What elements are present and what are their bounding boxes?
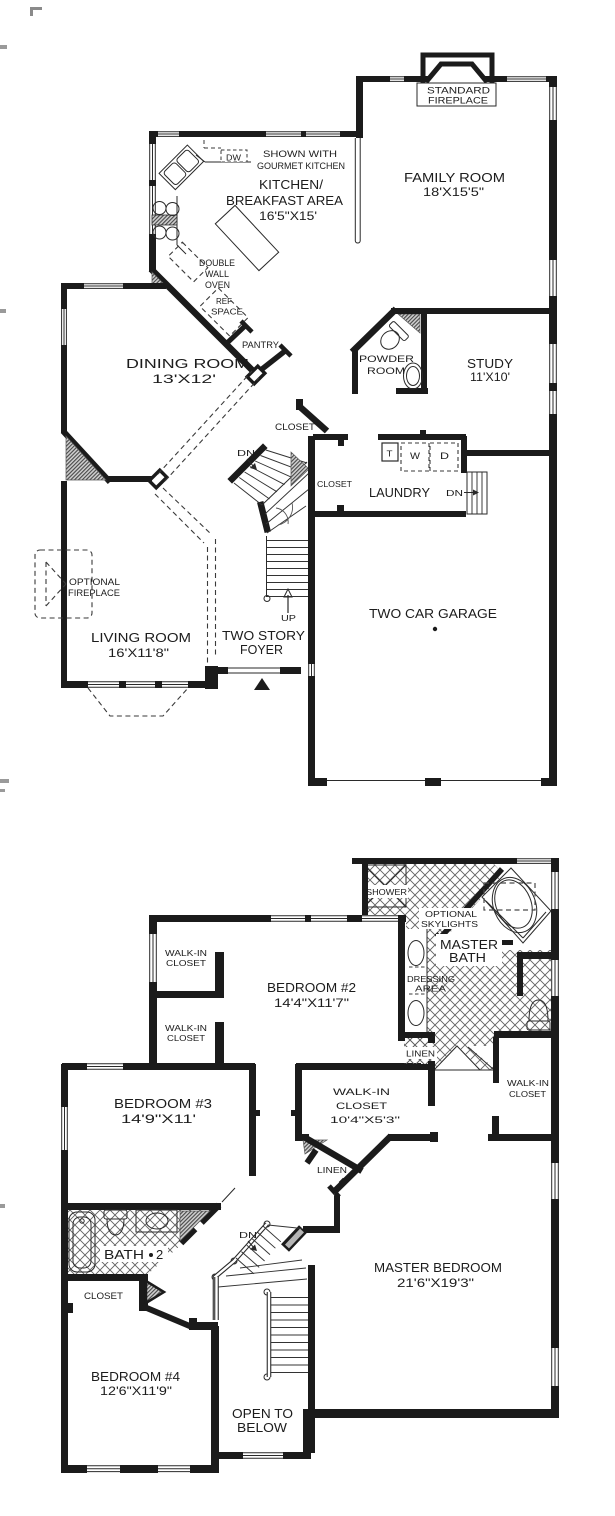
svg-text:BEDROOM #2: BEDROOM #2 [267, 980, 356, 995]
svg-text:WALK-IN: WALK-IN [507, 1078, 549, 1088]
svg-text:TWO CAR GARAGE: TWO CAR GARAGE [369, 606, 497, 621]
svg-text:DRESSING: DRESSING [407, 974, 455, 984]
svg-text:18'X15'5": 18'X15'5" [423, 185, 484, 199]
svg-text:POWDER: POWDER [359, 354, 414, 365]
svg-text:DW: DW [226, 153, 241, 163]
svg-text:PANTRY: PANTRY [242, 340, 280, 351]
svg-text:BREAKFAST AREA: BREAKFAST AREA [226, 193, 343, 208]
svg-text:TWO STORY: TWO STORY [222, 628, 305, 643]
svg-text:MASTER BEDROOM: MASTER BEDROOM [374, 1260, 502, 1275]
svg-text:16'5"X15': 16'5"X15' [259, 209, 317, 223]
svg-text:16'X11'8": 16'X11'8" [108, 646, 169, 660]
svg-text:13'X12': 13'X12' [152, 372, 216, 386]
svg-text:FOYER: FOYER [240, 642, 283, 657]
svg-text:ROOM: ROOM [367, 366, 405, 377]
svg-text:WALK-IN: WALK-IN [333, 1087, 390, 1098]
svg-text:WALL: WALL [205, 269, 229, 280]
svg-text:CLOSET: CLOSET [317, 479, 352, 489]
svg-text:12'6"X11'9": 12'6"X11'9" [100, 1384, 172, 1398]
svg-text:DN: DN [446, 488, 463, 498]
svg-text:CLOSET: CLOSET [509, 1089, 546, 1099]
svg-text:SHOWER: SHOWER [366, 887, 407, 897]
svg-text:DN: DN [239, 1230, 257, 1240]
svg-text:21'6"X19'3": 21'6"X19'3" [397, 1276, 474, 1290]
svg-text:LAUNDRY: LAUNDRY [369, 485, 430, 500]
svg-text:DOUBLE: DOUBLE [199, 258, 235, 269]
svg-text:AREA: AREA [415, 984, 446, 994]
svg-text:LIVING ROOM: LIVING ROOM [91, 630, 191, 645]
svg-text:BATH: BATH [104, 1247, 144, 1262]
svg-text:T: T [387, 449, 393, 459]
svg-text:FIREPLACE: FIREPLACE [68, 588, 120, 599]
svg-text:KITCHEN/: KITCHEN/ [259, 177, 323, 192]
svg-text:CLOSET: CLOSET [84, 1291, 123, 1302]
svg-text:SHOWN WITH: SHOWN WITH [263, 149, 337, 160]
svg-text:W: W [410, 451, 420, 462]
svg-text:WALK-IN: WALK-IN [165, 1023, 207, 1033]
svg-text:BEDROOM #3: BEDROOM #3 [114, 1096, 212, 1111]
svg-text:DN: DN [237, 448, 255, 458]
svg-text:11'X10': 11'X10' [470, 370, 510, 384]
svg-text:GOURMET KITCHEN: GOURMET KITCHEN [257, 161, 345, 172]
svg-text:CLOSET: CLOSET [275, 422, 315, 433]
svg-text:SKYLIGHTS: SKYLIGHTS [421, 919, 478, 929]
svg-text:BEDROOM #4: BEDROOM #4 [91, 1369, 180, 1384]
svg-text:UP: UP [281, 613, 296, 623]
svg-text:SPACE: SPACE [211, 307, 243, 317]
svg-text:10'4"X5'3": 10'4"X5'3" [330, 1115, 400, 1126]
svg-text:LINEN: LINEN [317, 1165, 347, 1175]
svg-text:DINING ROOM: DINING ROOM [126, 356, 249, 371]
svg-text:CLOSET: CLOSET [336, 1101, 387, 1112]
svg-text:14'4"X11'7": 14'4"X11'7" [274, 996, 349, 1010]
svg-text:CLOSET: CLOSET [166, 958, 206, 968]
svg-text:WALK-IN: WALK-IN [165, 948, 207, 958]
svg-text:D: D [440, 451, 449, 462]
svg-text:REF: REF [216, 296, 232, 306]
svg-text:2: 2 [156, 1247, 163, 1262]
svg-text:FIREPLACE: FIREPLACE [428, 96, 488, 107]
svg-text:LINEN: LINEN [406, 1049, 435, 1059]
svg-text:OVEN: OVEN [205, 280, 230, 291]
svg-text:FAMILY ROOM: FAMILY ROOM [404, 170, 505, 185]
svg-text:BELOW: BELOW [237, 1420, 288, 1435]
svg-text:STUDY: STUDY [467, 356, 513, 371]
svg-text:BATH: BATH [449, 950, 486, 965]
svg-text:CLOSET: CLOSET [167, 1033, 205, 1043]
svg-text:OPEN TO: OPEN TO [232, 1406, 293, 1421]
svg-text:OPTIONAL: OPTIONAL [69, 577, 120, 588]
svg-text:OPTIONAL: OPTIONAL [425, 909, 477, 919]
svg-text:14'9"X11': 14'9"X11' [121, 1112, 196, 1126]
